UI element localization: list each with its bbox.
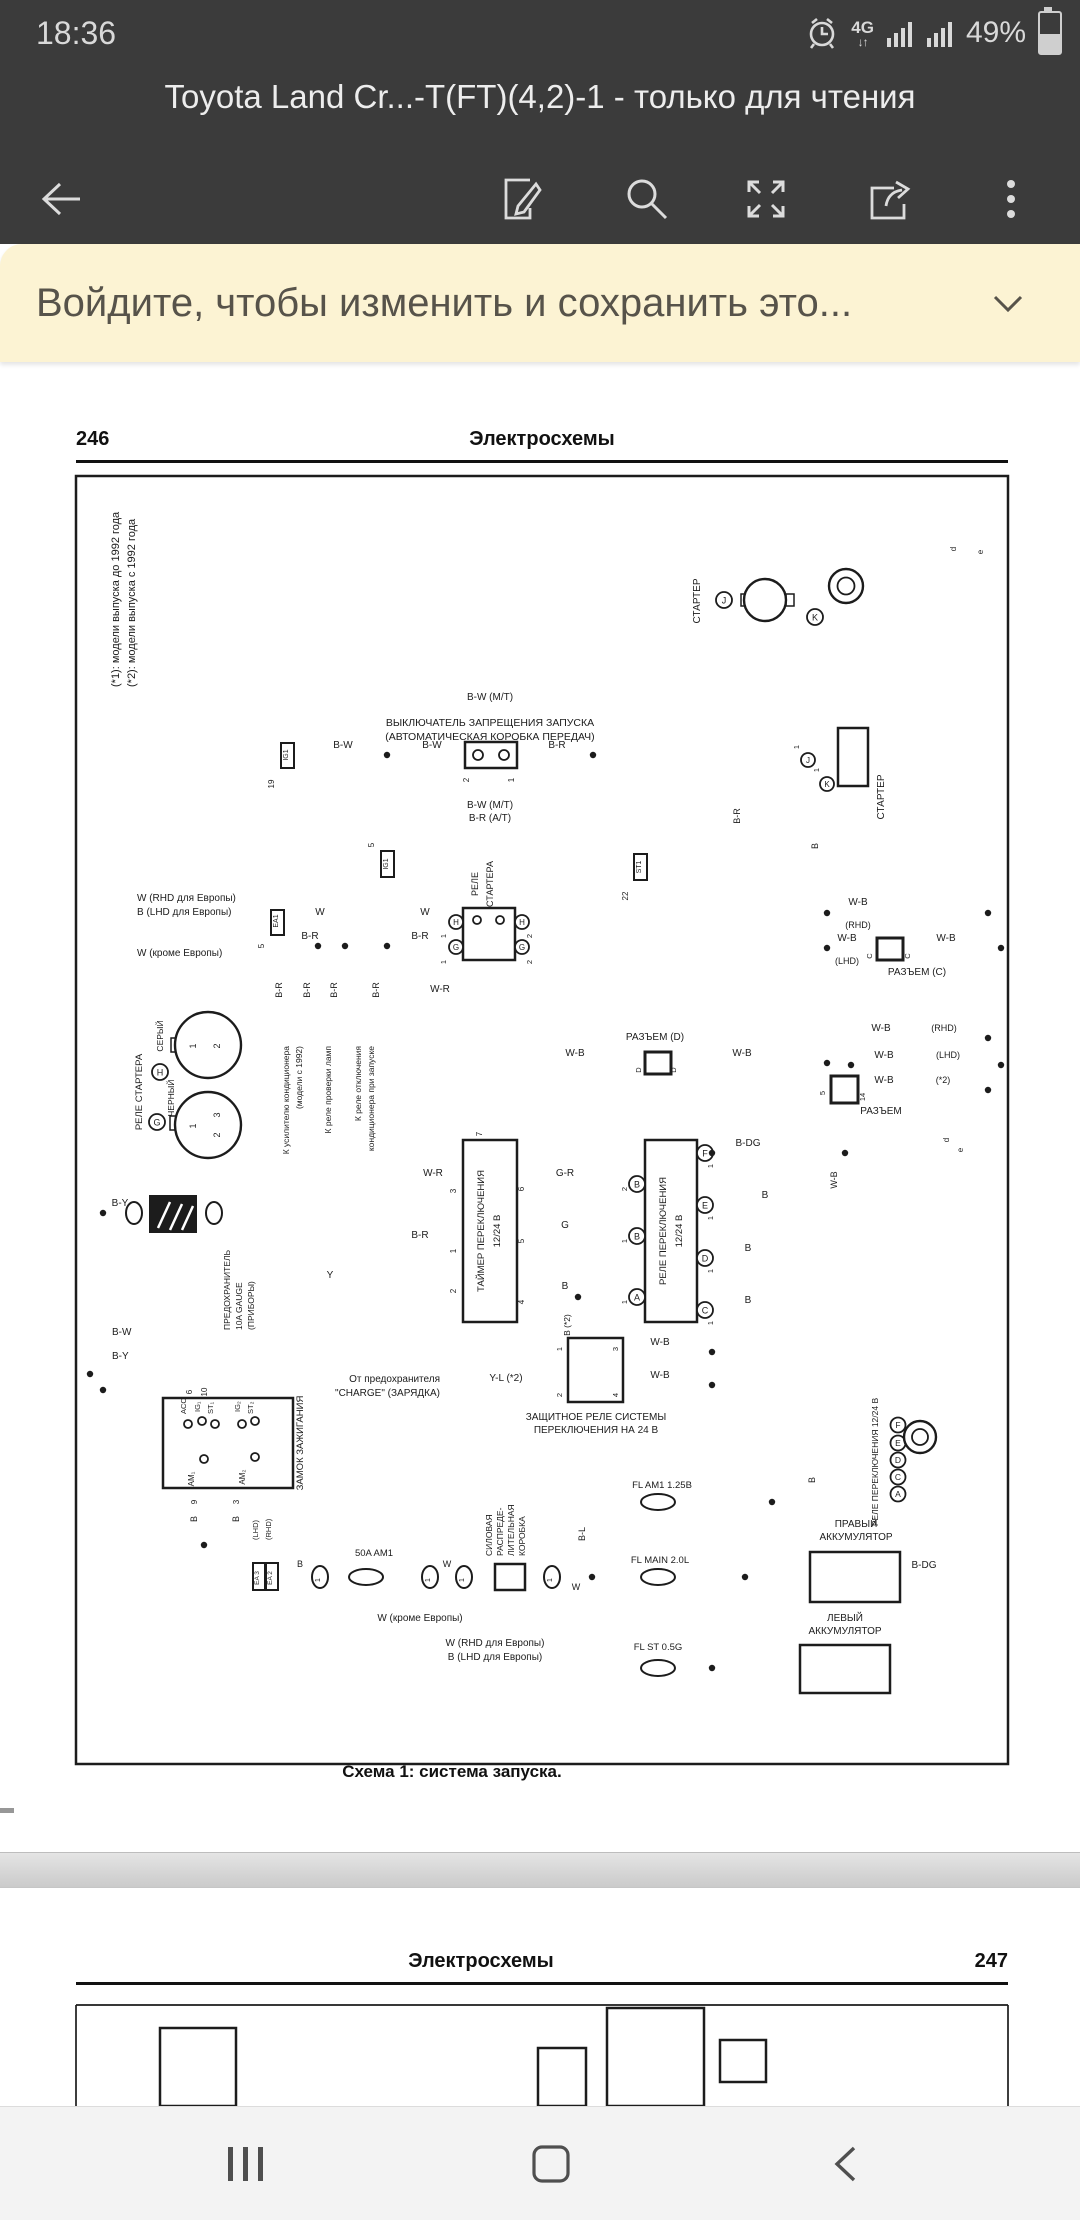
diagram-label: (LHD) [835, 956, 859, 966]
diagram-label: (*2): модели выпуска с 1992 года [126, 518, 138, 687]
header-rule [76, 460, 1008, 463]
connector-letter: K [824, 780, 830, 789]
connector-oval [456, 1566, 472, 1588]
diagram-label: (RHD) [931, 1023, 957, 1033]
back-icon[interactable] [36, 174, 86, 224]
diagram-label: W [420, 907, 430, 918]
diagram-label: B-R [411, 1230, 428, 1241]
diagram-label: e [976, 549, 985, 554]
diagram-label: W-B [837, 933, 857, 944]
diagram-label: 1 [792, 745, 801, 749]
diagram-label: 3 [611, 1347, 620, 1351]
diagram-label: 1 [507, 777, 516, 782]
diagram-label: B-R [371, 982, 381, 998]
diagram-label: B-R (A/T) [469, 813, 511, 824]
junction-dot [824, 945, 830, 951]
junction-dot [384, 752, 390, 758]
diagram-label: B [745, 1295, 752, 1306]
diagram-label: B [745, 1243, 752, 1254]
connector-letter: G [453, 943, 459, 952]
diagram-label: К реле отключения [353, 1046, 363, 1122]
connector-circle [251, 1417, 259, 1425]
page-246-header: Электросхемы [76, 428, 1008, 451]
diagram-label: W-B [871, 1023, 891, 1034]
diagram-label: W-R [423, 1168, 443, 1179]
connector-letter: A [634, 1292, 640, 1302]
diagram-label: 10 [200, 1387, 209, 1396]
diagram-label: W-B [874, 1050, 894, 1061]
diagram-label: IG1 [283, 749, 290, 760]
junction-dot [342, 943, 348, 949]
diagram-label: 10A GAUGE [234, 1282, 244, 1330]
diagram-label: D [634, 1067, 643, 1073]
wiring-diagram-partial-next-page [0, 1990, 1080, 2106]
status-bar: 18:36 4G ↓↑ 49% [0, 0, 1080, 66]
battery-icon [1038, 11, 1062, 55]
diagram-label: EA 2 [267, 1571, 274, 1585]
diagram-label: B (*2) [562, 1314, 572, 1336]
phone-screen: 18:36 4G ↓↑ 49% [0, 0, 1080, 2220]
junction-dot [590, 752, 596, 758]
diagram-label: ЛИТЕЛЬНАЯ [506, 1504, 516, 1556]
diagram-label: 5 [517, 1238, 526, 1243]
connector-circle [211, 1420, 219, 1428]
junction-dot [824, 1060, 830, 1066]
component-box [463, 908, 515, 960]
diagram-caption: Схема 1: система запуска. [76, 1762, 828, 1782]
component-box [645, 1052, 671, 1074]
diagram-label: 1 [547, 1578, 554, 1582]
diagram-label: КОРОБКА [517, 1516, 527, 1556]
connector-circle [499, 750, 509, 760]
diagram-label: 2 [462, 777, 471, 782]
connector-letter: E [895, 1438, 901, 1448]
junction-dot [87, 1371, 93, 1377]
diagram-label: W-B [829, 1171, 839, 1188]
connector-letter: F [702, 1148, 708, 1158]
diagram-label: B-R [301, 931, 318, 942]
connector-letter: G [519, 943, 525, 952]
diagram-label: ВЫКЛЮЧАТЕЛЬ ЗАПРЕЩЕНИЯ ЗАПУСКА [386, 717, 594, 729]
diagram-label: W-B [650, 1370, 670, 1381]
diagram-label: 6 [517, 1186, 526, 1191]
diagram-label: 7 [475, 1131, 484, 1136]
page-number-247: 247 [940, 1950, 1008, 1973]
connector-circle [496, 916, 504, 924]
diagram-label: 2 [620, 1187, 629, 1191]
diagram-label: 5 [818, 1091, 827, 1095]
connector-letter: A [895, 1489, 901, 1499]
diagram-label: G [561, 1220, 569, 1231]
diagram-label: 1 [706, 1269, 715, 1273]
diagram-label: 3 [449, 1188, 458, 1193]
diagram-label: РЕЛЕ ПЕРЕКЛЮЧЕНИЯ [658, 1177, 669, 1285]
connector-letter: C [895, 1472, 901, 1482]
connector-circle [473, 750, 483, 760]
diagram-label: B [807, 1477, 817, 1483]
diagram-label: 1 [449, 1248, 458, 1253]
diagram-label: ПЕРЕКЛЮЧЕНИЯ НА 24 В [534, 1425, 659, 1436]
scroll-indicator [0, 1808, 14, 1813]
diagram-label: ST₁ [206, 1401, 215, 1414]
page-separator [0, 1852, 1080, 1888]
connector-letter: D [895, 1455, 901, 1465]
junction-dot [709, 1382, 715, 1388]
component-box [877, 938, 903, 960]
search-icon[interactable] [621, 174, 671, 224]
junction-dot [709, 1150, 715, 1156]
diagram-label: РАЗЪЕМ (C) [888, 967, 946, 978]
connector-letter: H [157, 1067, 164, 1077]
diagram-label: 14 [858, 1093, 867, 1101]
diagram-label: (RHD) [845, 920, 871, 930]
connector-circle [912, 1429, 928, 1445]
back-icon[interactable] [832, 2145, 858, 2183]
diagram-label: 5 [257, 943, 266, 948]
signal-icon [926, 16, 954, 50]
diagram-label: ЗАЩИТНОЕ РЕЛЕ СИСТЕМЫ [526, 1412, 667, 1423]
diagram-label: W [315, 907, 325, 918]
diagram-label: Y [327, 1270, 334, 1281]
diagram-label: 1 [812, 768, 821, 772]
component-box [645, 1140, 697, 1322]
connector-letter: H [453, 918, 459, 927]
diagram-label: РЕЛЕ [470, 872, 480, 896]
diagram-label: W-B [848, 897, 868, 908]
connector-letter: D [702, 1253, 709, 1263]
connector-oval [641, 1569, 675, 1585]
diagram-label: B-W (M/T) [467, 800, 513, 811]
diagram-label: W-B [936, 933, 956, 944]
junction-dot [100, 1387, 106, 1393]
connector-letter: C [702, 1305, 709, 1315]
document-title: Toyota Land Cr...-T(FT)(4,2)-1 - только … [0, 78, 1080, 116]
diagram-label: ПРЕДОХРАНИТЕЛЬ [222, 1249, 232, 1330]
diagram-label: B [762, 1190, 769, 1201]
diagram-label: 1 [188, 1043, 198, 1048]
diagram-label: B-Y [112, 1351, 129, 1362]
connector-letter: B [634, 1179, 640, 1189]
diagram-label: B-R [732, 808, 742, 824]
diagram-label: W (RHD для Европы) [137, 893, 236, 904]
diagram-label: СИЛОВАЯ [484, 1514, 494, 1556]
diagram-label: d [949, 547, 958, 551]
connector-circle [198, 1417, 206, 1425]
diagram-label: 4 [611, 1393, 620, 1397]
diagram-label: СТАРТЕР [876, 774, 887, 819]
diagram-label: FL MAIN 2.0L [631, 1555, 689, 1566]
connector-oval [641, 1660, 675, 1676]
diagram-label: (LHD) [251, 1519, 260, 1540]
wiring-diagram-starting-system: JKJKHHGGHGBBAFEDCFEDCA(*1): модели выпус… [0, 470, 1080, 1770]
diagram-label: IG₂ [233, 1401, 242, 1412]
diagram-label: 1 [439, 960, 448, 964]
junction-dot [985, 910, 991, 916]
component-box [838, 728, 868, 786]
diagram-label: ЛЕВЫЙ [827, 1611, 863, 1624]
diagram-label: 2 [449, 1288, 458, 1293]
connector-letter: K [812, 612, 818, 622]
diagram-label: W [572, 1582, 581, 1592]
diagram-label: Y-L (*2) [489, 1373, 522, 1384]
diagram-label: (*2) [936, 1075, 951, 1085]
connector-oval [544, 1566, 560, 1588]
junction-dot [315, 943, 321, 949]
clock-text: 18:36 [36, 0, 116, 66]
diagram-label: 1 [459, 1578, 466, 1582]
diagram-label: (*1): модели выпуска до 1992 года [110, 511, 122, 687]
diagram-label: 5 [367, 842, 376, 847]
diagram-label: ST₂ [246, 1401, 255, 1414]
junction-dot [709, 1349, 715, 1355]
navigation-bar [0, 2106, 1080, 2220]
diagram-label: 1 [315, 1578, 322, 1582]
junction-dot [575, 1294, 581, 1300]
diagram-label: 3 [232, 1499, 241, 1504]
connector-oval [422, 1566, 438, 1588]
diagram-label: AM₁ [187, 1471, 196, 1486]
diagram-label: B [297, 1559, 303, 1569]
diagram-label: B-R [548, 740, 565, 751]
diagram-label: B-W [422, 740, 442, 751]
diagram-label: 2 [212, 1043, 222, 1048]
diagram-label: 2 [555, 1393, 564, 1397]
diagram-label: EA1 [273, 914, 280, 927]
diagram-label: W [443, 1559, 452, 1569]
connector-letter: H [519, 918, 525, 927]
connector-oval [206, 1202, 222, 1224]
diagram-label: B-R [411, 931, 428, 942]
diagram-label: СТАРТЕРА [485, 861, 495, 907]
junction-dot [384, 943, 390, 949]
diagram-label: 1 [620, 1239, 629, 1243]
connector-letter: G [153, 1117, 160, 1127]
diagram-label: ЗАМОК ЗАЖИГАНИЯ [295, 1396, 306, 1491]
component-box [786, 594, 794, 606]
diagram-label: IG₁ [193, 1401, 202, 1412]
diagram-label: B [231, 1516, 241, 1522]
signal-icon [886, 16, 914, 50]
diagram-label: 1 [439, 934, 448, 938]
diagram-label: От предохранителя [349, 1374, 440, 1385]
diagram-label: B-Y [112, 1198, 129, 1209]
diagram-label: B-DG [736, 1138, 761, 1149]
junction-dot [985, 1087, 991, 1093]
diagram-label: 2 [525, 934, 534, 938]
diagram-label: EA 3 [254, 1571, 261, 1585]
diagram-label: 12/24 В [492, 1215, 503, 1248]
diagram-label: РАЗЪЕМ [860, 1106, 902, 1117]
connector-letter: J [806, 756, 810, 765]
connector-circle [175, 1012, 241, 1078]
diagram-label: АККУМУЛЯТОР [819, 1532, 892, 1543]
diagram-label: B [810, 843, 820, 849]
component-box [831, 1076, 858, 1103]
component-box [495, 1564, 525, 1590]
fullscreen-icon[interactable] [741, 174, 791, 224]
connector-circle [238, 1420, 246, 1428]
diagram-label: 12/24 В [674, 1215, 685, 1248]
junction-dot [824, 910, 830, 916]
connector-circle [744, 579, 786, 621]
diagram-label: B-W [333, 740, 353, 751]
diagram-label: 1 [188, 1123, 198, 1128]
component-box [720, 2040, 766, 2082]
diagram-label: AM₂ [238, 1469, 247, 1484]
chevron-down-icon[interactable] [992, 294, 1024, 314]
junction-dot [100, 1210, 106, 1216]
alarm-icon [805, 15, 839, 51]
diagram-label: G-R [556, 1168, 574, 1179]
junction-dot [848, 1062, 854, 1068]
diagram-label: 1 [620, 1300, 629, 1304]
diagram-label: C [903, 953, 912, 959]
diagram-label: 2 [525, 960, 534, 964]
diagram-label: d [942, 1138, 951, 1142]
diagram-label: "CHARGE" (ЗАРЯДКА) [335, 1388, 440, 1399]
diagram-label: (ПРИБОРЫ) [246, 1281, 256, 1330]
battery-percent-text: 49% [966, 16, 1026, 50]
connector-circle [251, 1453, 259, 1461]
connector-circle [184, 1420, 192, 1428]
diagram-label: D [669, 1067, 678, 1073]
diagram-label: (RHD) [264, 1518, 273, 1540]
diagram-label: (модели с 1992) [294, 1046, 304, 1109]
banner-message: Войдите, чтобы изменить и сохранить это.… [36, 244, 852, 362]
junction-dot [842, 1150, 848, 1156]
diagram-label: 1 [706, 1216, 715, 1220]
connector-oval [641, 1494, 675, 1510]
diagram-label: B-W [112, 1327, 132, 1338]
diagram-label: C [865, 953, 874, 959]
diagram-label: К усилителю кондиционера [281, 1046, 291, 1155]
junction-dot [709, 1665, 715, 1671]
diagram-label: К реле проверки ламп [323, 1046, 333, 1134]
diagram-label: СЕРЫЙ [154, 1020, 165, 1051]
diagram-label: 1 [555, 1347, 564, 1351]
diagram-label: РАЗЪЕМ (D) [626, 1032, 684, 1043]
component-box [463, 1140, 517, 1322]
component-box [160, 2028, 236, 2106]
junction-dot [201, 1542, 207, 1548]
diagram-label: FL ST 0.5G [634, 1642, 683, 1653]
diagram-label: 2 [212, 1132, 222, 1137]
share-icon[interactable] [864, 174, 914, 224]
diagram-label: e [956, 1147, 965, 1152]
diagram-label: IG1 [383, 858, 390, 869]
connector-oval [312, 1566, 328, 1588]
diagram-label: РЕЛЕ СТАРТЕРА [134, 1053, 145, 1130]
diagram-label: РЕЛЕ ПЕРЕКЛЮЧЕНИЯ 12/24 В [870, 1398, 880, 1527]
component-box [810, 1552, 900, 1602]
diagram-label: B-R [302, 982, 312, 998]
junction-dot [998, 1062, 1004, 1068]
component-box [607, 2008, 704, 2106]
diagram-label: СТАРТЕР [692, 578, 703, 623]
component-box [800, 1645, 890, 1693]
diagram-label: B-L [577, 1527, 587, 1541]
diagram-label: B-R [329, 982, 339, 998]
diagram-label: ACC [179, 1398, 188, 1414]
connector-circle [175, 1092, 241, 1158]
diagram-label: 9 [190, 1499, 199, 1504]
app-bar: Toyota Land Cr...-T(FT)(4,2)-1 - только … [0, 66, 1080, 244]
junction-dot [769, 1499, 775, 1505]
diagram-label: АККУМУЛЯТОР [808, 1626, 881, 1637]
sign-in-banner[interactable]: Войдите, чтобы изменить и сохранить это.… [0, 244, 1080, 362]
diagram-label: 1 [425, 1578, 432, 1582]
diagram-label: 50A AM1 [355, 1548, 393, 1559]
connector-circle [473, 916, 481, 924]
diagram-label: FL AM1 1.25B [632, 1480, 692, 1491]
connector-letter: F [895, 1420, 900, 1430]
connector-oval [126, 1202, 142, 1224]
diagram-label: W (RHD для Европы) [446, 1638, 545, 1649]
connector-letter: E [702, 1200, 708, 1210]
status-icons: 4G ↓↑ 49% [805, 0, 1062, 66]
diagram-label: 6 [185, 1389, 194, 1394]
diagram-label: B (LHD для Европы) [448, 1652, 542, 1663]
diagram-label: ST1 [636, 860, 643, 873]
component-box [538, 2048, 586, 2106]
diagram-label: B-R [274, 982, 284, 998]
diagram-label: W (кроме Европы) [137, 948, 222, 959]
diagram-label: (LHD) [936, 1050, 960, 1060]
page-247-header: Электросхемы [76, 1950, 886, 1973]
diagram-label: 19 [267, 779, 276, 788]
diagram-label: 22 [621, 891, 630, 900]
diagram-label: 3 [212, 1112, 222, 1117]
diagram-label: W-R [430, 984, 450, 995]
diagram-label: B-W (M/T) [467, 692, 513, 703]
home-icon[interactable] [531, 2145, 571, 2183]
diagram-label: W-B [650, 1337, 670, 1348]
edit-icon[interactable] [496, 174, 546, 224]
junction-dot [742, 1574, 748, 1580]
diagram-label: 1 [706, 1321, 715, 1325]
diagram-label: РАСПРЕДЕ- [495, 1507, 505, 1556]
connector-letter: J [722, 595, 727, 605]
diagram-label: W (кроме Европы) [377, 1613, 462, 1624]
diagram-label: 4 [517, 1299, 526, 1304]
overflow-menu-icon[interactable] [986, 174, 1036, 224]
junction-dot [985, 1035, 991, 1041]
network-4g-icon: 4G ↓↑ [851, 19, 874, 48]
diagram-label: B [189, 1516, 199, 1522]
diagram-label: B-DG [912, 1560, 937, 1571]
recents-icon[interactable] [226, 2145, 266, 2183]
diagram-label: ТАЙМЕР ПЕРЕКЛЮЧЕНИЯ [475, 1170, 487, 1292]
diagram-label: B [562, 1281, 569, 1292]
connector-letter: B [634, 1231, 640, 1241]
junction-dot [589, 1574, 595, 1580]
junction-dot [998, 945, 1004, 951]
connector-circle [200, 1455, 208, 1463]
diagram-label: ЧЕРНЫЙ [165, 1080, 176, 1117]
diagram-label: W-B [874, 1075, 894, 1086]
diagram-label: B (LHD для Европы) [137, 907, 231, 918]
header-rule-2 [76, 1982, 1008, 1985]
connector-oval [349, 1569, 383, 1585]
diagram-label: W-B [732, 1048, 752, 1059]
diagram-label: 1 [706, 1164, 715, 1168]
connector-circle [838, 578, 855, 595]
diagram-label: W-B [565, 1048, 585, 1059]
diagram-label: кондиционера при запуске [366, 1046, 376, 1151]
